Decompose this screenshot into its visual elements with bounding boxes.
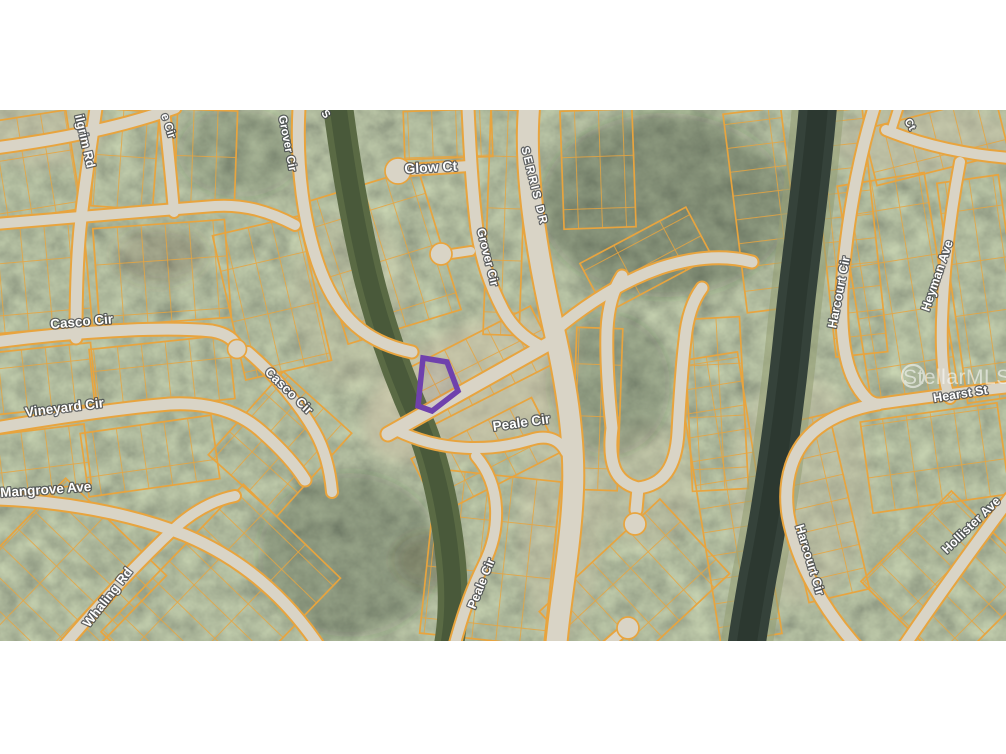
white-margin-bottom: [0, 641, 1006, 754]
stellar-mls-watermark-text: StellarMLS: [903, 366, 1006, 389]
white-margin-top: [0, 0, 1006, 110]
aerial-map-image[interactable]: Glow Ct Grover Cir S e Cir ilgrim Rd SER…: [0, 110, 1006, 641]
street-label-glow-ct: Glow Ct: [404, 158, 458, 177]
stellar-mls-watermark: StellarMLS: [902, 365, 1006, 389]
